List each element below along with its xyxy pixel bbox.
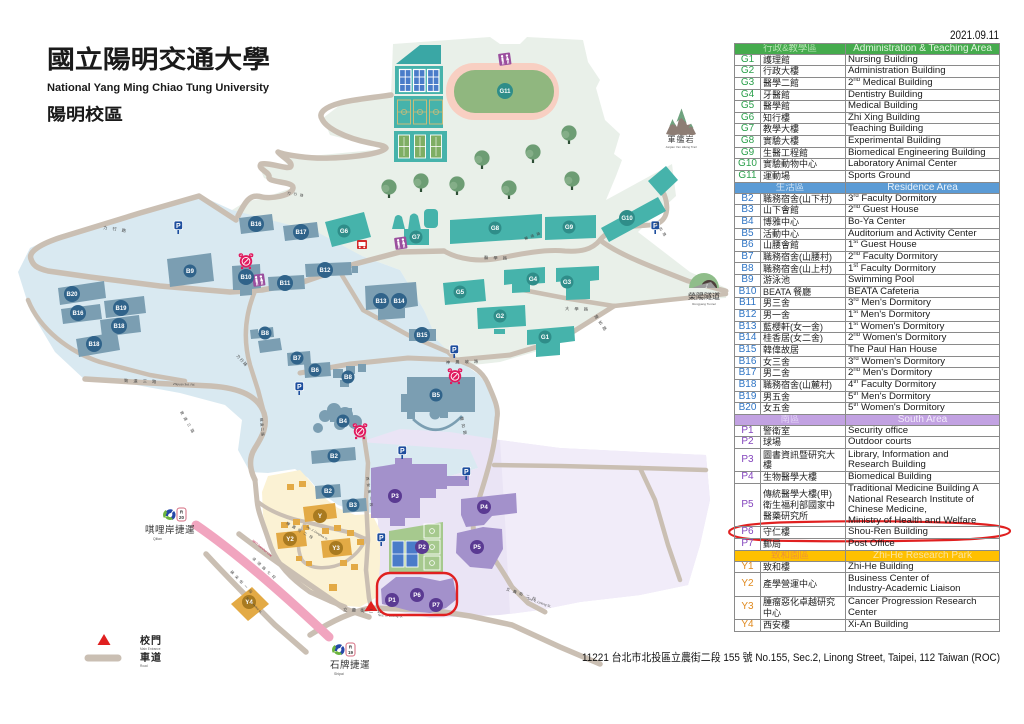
svg-text:B10: B10 [240,275,252,281]
svg-text:G1: G1 [541,334,550,341]
svg-text:B5: B5 [432,392,440,399]
svg-text:石牌捷運: 石牌捷運 [330,659,370,671]
svg-text:G10: G10 [621,216,633,222]
svg-text:P: P [379,535,384,542]
svg-text:B9: B9 [186,268,194,275]
svg-text:11221 台北市北投區立農街二段 155 號 No.1: 11221 台北市北投區立農街二段 155 號 No.155, Sec.2, L… [582,651,1000,664]
svg-text:Y3: Y3 [332,545,340,552]
svg-text:B11: B11 [280,281,291,287]
svg-text:B16: B16 [250,222,262,228]
svg-text:B15: B15 [416,333,428,339]
svg-text:B17: B17 [295,230,307,236]
svg-text:P: P [400,448,405,455]
svg-text:B13: B13 [375,299,387,305]
svg-text:20: 20 [179,515,185,520]
svg-text:P4: P4 [480,504,488,511]
svg-text:P2: P2 [418,544,426,551]
svg-text:軍艦岩: 軍艦岩 [668,134,695,144]
svg-text:B12: B12 [319,268,331,274]
svg-text:B2: B2 [324,488,332,495]
svg-text:19: 19 [348,650,354,655]
svg-text:B8: B8 [344,374,352,381]
svg-text:Road: Road [140,664,148,668]
svg-text:P3: P3 [391,493,399,500]
svg-text:唭哩岸捷運: 唭哩岸捷運 [145,524,195,536]
svg-text:P7: P7 [432,602,440,609]
svg-text:G8: G8 [491,225,500,232]
svg-text:Zhiyuan 3rd. Rd.: Zhiyuan 3rd. Rd. [173,382,195,387]
svg-text:P: P [176,223,181,230]
svg-text:陽明校區: 陽明校區 [47,104,123,124]
svg-text:P: P [452,347,457,354]
svg-text:G5: G5 [456,289,465,296]
svg-text:致 遠 三 路: 致 遠 三 路 [179,410,196,434]
svg-text:榮陽隧道: 榮陽隧道 [688,291,720,301]
svg-text:G2: G2 [496,313,505,320]
svg-text:Shipai: Shipai [334,672,344,676]
svg-text:P6: P6 [413,592,421,599]
svg-text:B18: B18 [113,324,125,330]
svg-text:Junjian Yan Hiking Trail: Junjian Yan Hiking Trail [665,145,696,149]
svg-text:G4: G4 [529,276,538,283]
svg-text:Rongyang Tunnel: Rongyang Tunnel [692,302,716,306]
svg-text:Qilian: Qilian [153,537,162,541]
svg-text:P: P [464,469,469,476]
svg-text:G6: G6 [340,228,349,235]
svg-text:B2: B2 [330,453,338,460]
svg-text:2021.09.11: 2021.09.11 [950,30,999,42]
svg-text:B14: B14 [393,299,405,305]
svg-text:Y2: Y2 [286,536,294,543]
svg-text:校門: 校門 [140,634,162,647]
svg-text:P1: P1 [388,597,396,604]
svg-text:National Yang Ming Chiao Tung: National Yang Ming Chiao Tung University [47,82,270,94]
svg-text:P: P [297,384,302,391]
svg-text:B8: B8 [261,330,269,337]
svg-text:B19: B19 [115,306,127,312]
svg-text:G3: G3 [563,279,572,286]
svg-text:P5: P5 [473,544,481,551]
svg-text:B16: B16 [72,311,84,317]
svg-text:G11: G11 [499,89,511,95]
svg-text:B18: B18 [88,342,100,348]
svg-text:B20: B20 [66,292,78,298]
svg-text:B4: B4 [339,418,347,425]
svg-text:國立陽明交通大學: 國立陽明交通大學 [47,45,270,74]
svg-text:G9: G9 [565,224,574,231]
svg-text:G7: G7 [412,234,421,241]
svg-text:B3: B3 [349,502,357,509]
svg-text:B7: B7 [293,355,301,362]
svg-text:Main Entrance: Main Entrance [140,647,161,651]
svg-text:車道: 車道 [140,651,162,664]
svg-text:B6: B6 [311,367,319,374]
